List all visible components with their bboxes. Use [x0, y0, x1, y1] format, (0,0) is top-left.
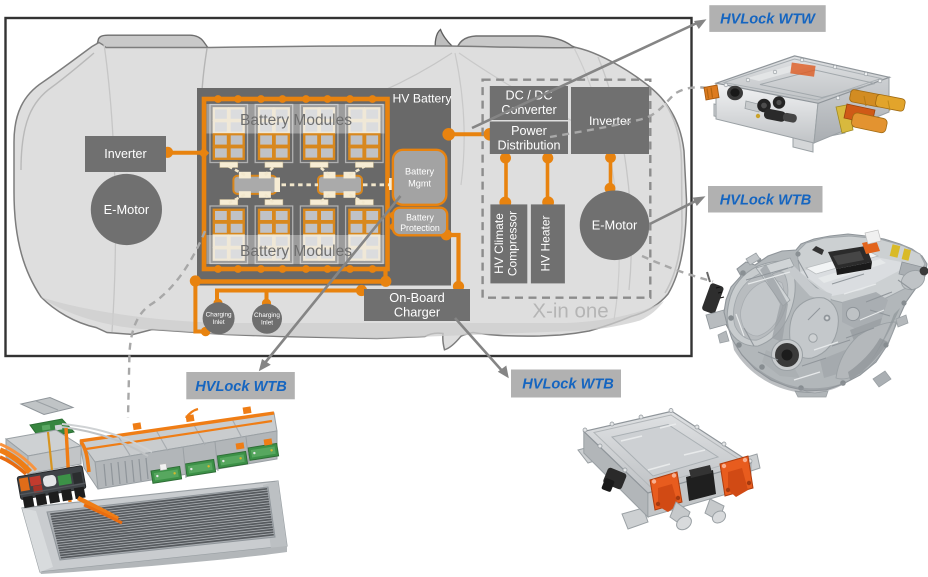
- svg-text:Charger: Charger: [394, 305, 441, 320]
- svg-text:On-Board: On-Board: [389, 290, 444, 305]
- svg-text:E-Motor: E-Motor: [104, 202, 150, 217]
- svg-text:Compressor: Compressor: [506, 211, 520, 276]
- svg-text:E-Motor: E-Motor: [592, 218, 638, 233]
- svg-text:Battery: Battery: [405, 167, 435, 177]
- svg-text:HV Climate: HV Climate: [492, 213, 506, 274]
- svg-text:Protection: Protection: [400, 223, 440, 233]
- svg-text:X-in one: X-in one: [532, 300, 608, 323]
- svg-text:Battery Modules: Battery Modules: [240, 112, 352, 129]
- svg-text:HV Battery: HV Battery: [393, 92, 453, 106]
- svg-text:HVLock WTW: HVLock WTW: [720, 12, 816, 28]
- svg-text:HV Heater: HV Heater: [539, 215, 553, 271]
- svg-text:HVLock WTB: HVLock WTB: [195, 379, 287, 395]
- svg-text:HVLock WTB: HVLock WTB: [720, 192, 812, 208]
- svg-text:Mgmt: Mgmt: [408, 179, 431, 189]
- svg-text:Battery Modules: Battery Modules: [240, 243, 352, 260]
- svg-text:Distribution: Distribution: [498, 139, 561, 153]
- svg-text:Charging: Charging: [254, 312, 280, 319]
- svg-text:Inverter: Inverter: [589, 114, 631, 128]
- svg-text:HVLock WTB: HVLock WTB: [522, 377, 614, 393]
- svg-text:Charging: Charging: [206, 312, 232, 319]
- svg-text:Inverter: Inverter: [104, 147, 146, 161]
- svg-text:Inlet: Inlet: [261, 320, 273, 327]
- svg-text:Power: Power: [511, 124, 547, 138]
- svg-text:Inlet: Inlet: [213, 319, 225, 326]
- svg-text:Battery: Battery: [406, 212, 434, 222]
